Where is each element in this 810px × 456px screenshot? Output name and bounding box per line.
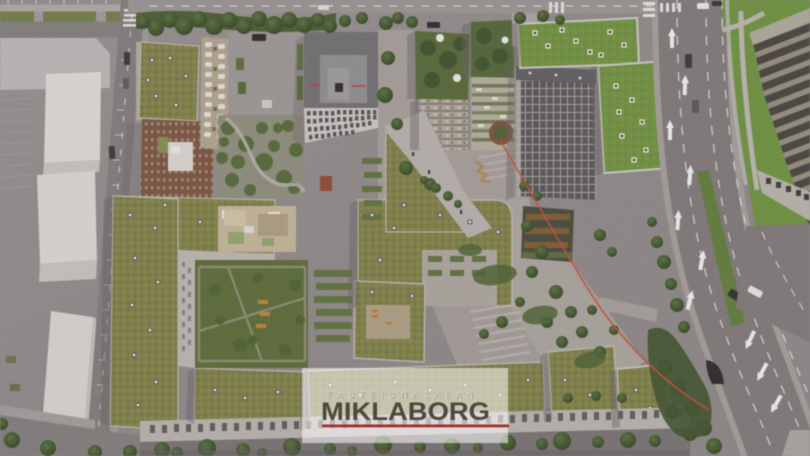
- svg-text:MIKLABORG: MIKLABORG: [321, 398, 490, 426]
